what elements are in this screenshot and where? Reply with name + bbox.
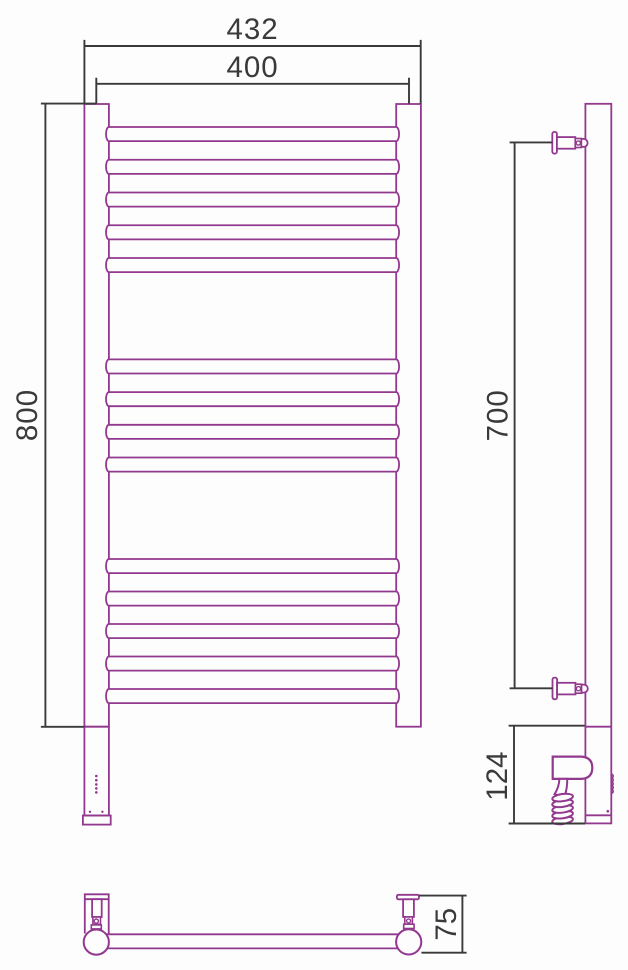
svg-text:432: 432 xyxy=(226,13,278,46)
svg-text:75: 75 xyxy=(430,908,463,941)
svg-text:800: 800 xyxy=(11,389,44,441)
svg-text:700: 700 xyxy=(481,389,514,441)
svg-text:400: 400 xyxy=(226,51,278,84)
svg-text:124: 124 xyxy=(481,751,514,800)
